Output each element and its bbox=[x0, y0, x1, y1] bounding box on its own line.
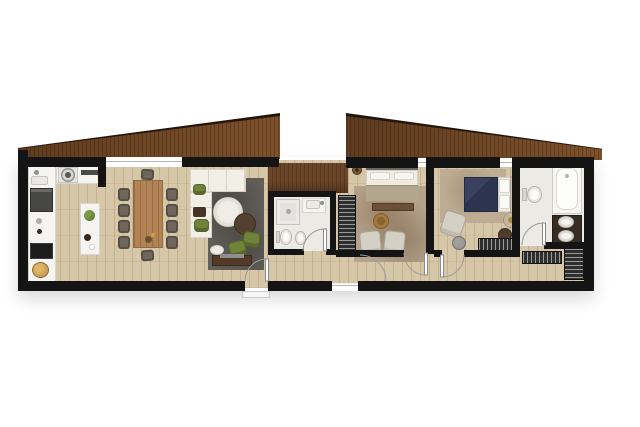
master-bedroom-door-arc bbox=[442, 255, 464, 277]
door-arcs-overlay bbox=[0, 0, 640, 427]
entry-door-arc bbox=[245, 259, 267, 281]
master-bath-door-leaf bbox=[543, 223, 546, 245]
bedroom1-door-arc bbox=[404, 253, 426, 275]
central-bath-door-leaf bbox=[324, 229, 327, 251]
master-bath-door-arc bbox=[522, 223, 544, 245]
corridor-entry-door-arc bbox=[360, 255, 386, 281]
entry-door-leaf bbox=[266, 259, 269, 281]
master-bedroom-door-leaf bbox=[441, 255, 444, 277]
floor-plan bbox=[0, 0, 640, 427]
bedroom1-door-leaf bbox=[425, 253, 428, 275]
central-bath-door-arc bbox=[303, 229, 325, 251]
